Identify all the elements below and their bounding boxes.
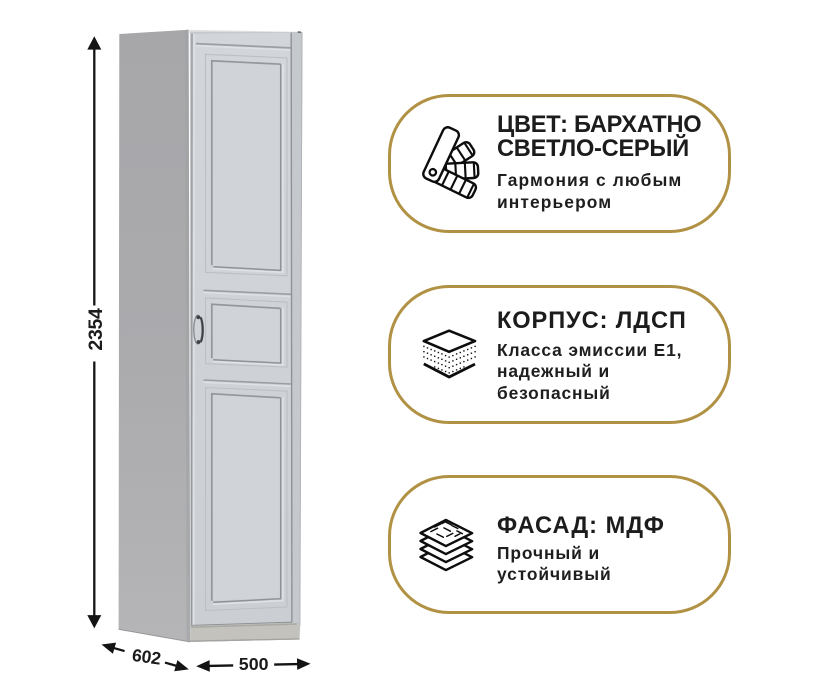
svg-text:2354: 2354 bbox=[85, 308, 107, 351]
svg-text:500: 500 bbox=[239, 654, 269, 674]
svg-text:602: 602 bbox=[131, 645, 163, 669]
